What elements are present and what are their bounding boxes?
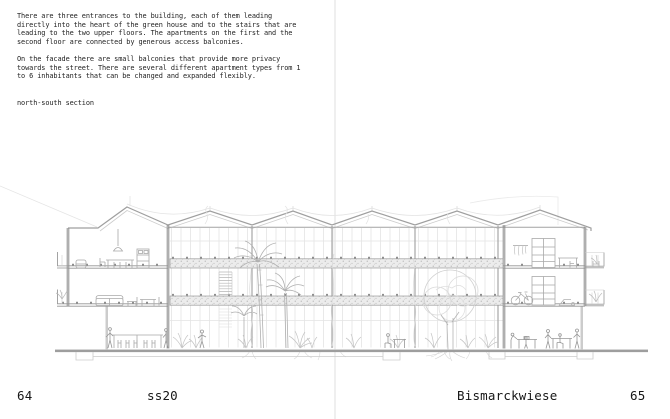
access-balcony-band-upper bbox=[170, 258, 503, 268]
foundations bbox=[76, 352, 593, 360]
sketch-lines bbox=[0, 186, 558, 227]
section-drawing bbox=[0, 0, 670, 419]
plant-roots bbox=[242, 351, 492, 360]
semester-label: ss20 bbox=[147, 388, 178, 403]
left-apartment-block bbox=[56, 229, 168, 348]
book-spread-page: There are three entrances to the buildin… bbox=[0, 0, 670, 419]
page-number-right: 65 bbox=[630, 388, 645, 403]
ground-line bbox=[55, 349, 648, 351]
ground-floor-figures bbox=[511, 329, 580, 349]
right-apartment-block bbox=[503, 239, 604, 349]
project-name-label: Bismarckwiese bbox=[457, 388, 557, 403]
page-number-left: 64 bbox=[17, 388, 32, 403]
access-balcony-band-lower bbox=[170, 295, 503, 305]
